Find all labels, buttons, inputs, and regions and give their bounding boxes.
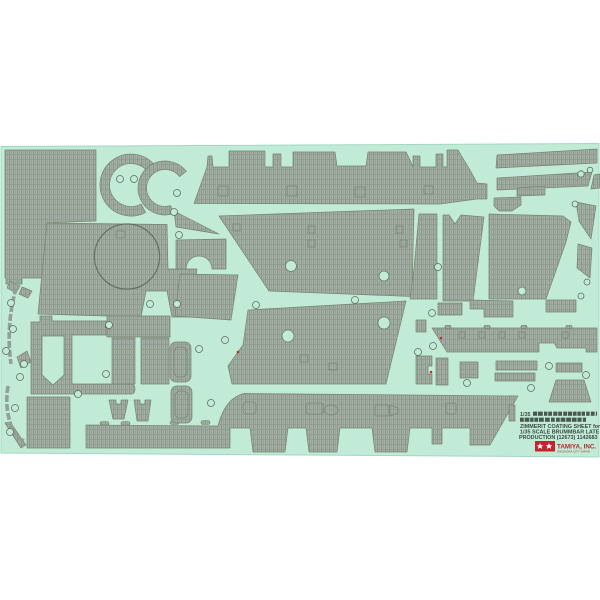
svg-text:1/35: 1/35 — [520, 412, 531, 418]
svg-text:SHIZUOKA CITY JAPAN: SHIZUOKA CITY JAPAN — [557, 450, 590, 454]
svg-text:PRODUCTION (12673) 1142683: PRODUCTION (12673) 1142683 — [519, 435, 598, 441]
